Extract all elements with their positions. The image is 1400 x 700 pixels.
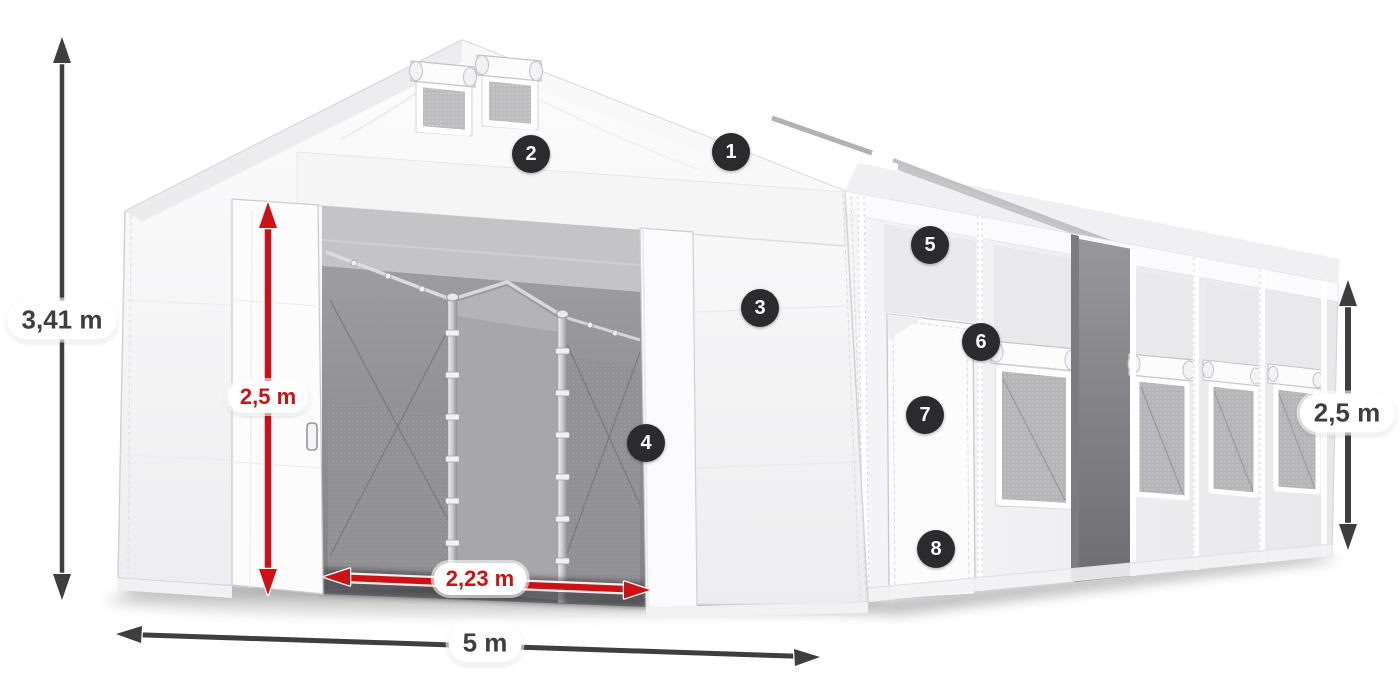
tent-illustration [0,0,1400,700]
interior-middle-panel [456,302,558,600]
feature-marker-3[interactable]: 3 [741,289,779,327]
entrance-right-post [640,228,697,610]
tent-dimensions-diagram: 1 2 3 4 5 6 7 8 3,41 m 2,5 m 2,23 m 5 m … [0,0,1400,700]
gable-vent-left [410,61,477,136]
side-opening [1071,234,1132,582]
interior-mesh-left [328,398,448,591]
label-total-height: 3,41 m [8,301,117,340]
door-handle[interactable] [307,423,317,450]
gable-vent-right [476,55,543,130]
label-side-wall-height: 2,5 m [1300,394,1395,433]
interior-mesh-right [566,354,640,601]
side-window-2 [1128,270,1195,498]
label-entrance-width: 2,23 m [434,563,527,595]
feature-marker-7[interactable]: 7 [906,396,944,434]
side-window-3 [1203,283,1262,495]
feature-marker-4[interactable]: 4 [627,424,665,462]
label-tent-width: 5 m [449,624,522,663]
vent-mesh [486,78,534,127]
mesh-window [999,368,1069,506]
entrance-opening [322,206,646,607]
label-entrance-height: 2,5 m [228,381,308,413]
front-facade [118,40,868,618]
vent-mesh [420,84,468,133]
feature-marker-6[interactable]: 6 [962,323,1000,361]
feature-marker-2[interactable]: 2 [512,135,550,173]
feature-marker-8[interactable]: 8 [917,530,955,568]
ridge-pipe [772,118,872,153]
side-window-1 [989,245,1079,509]
feature-marker-5[interactable]: 5 [911,226,949,264]
feature-marker-1[interactable]: 1 [712,133,750,171]
